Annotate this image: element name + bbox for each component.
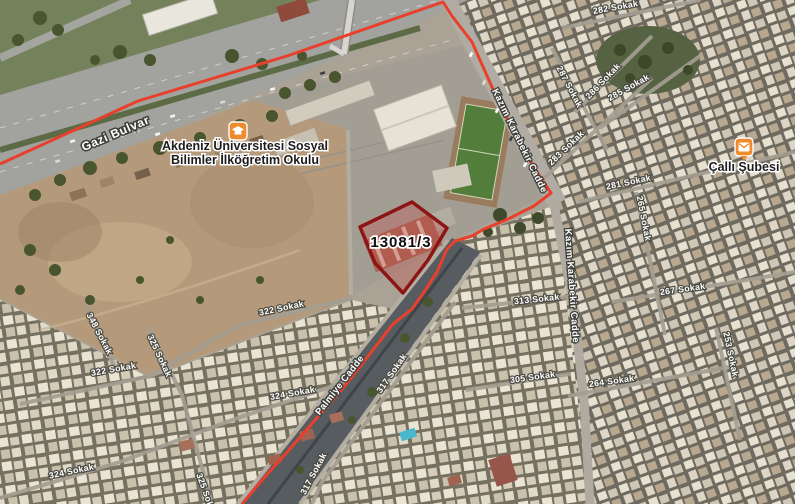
- parcel-label: 13081/3: [370, 234, 431, 251]
- school-icon[interactable]: [229, 122, 247, 140]
- poi-school-label-line1: Akdeniz Üniversitesi Sosyal: [162, 138, 328, 153]
- satellite-map[interactable]: 13081/3 Akdeniz Üniversitesi Sosyal Bili…: [0, 0, 795, 504]
- poi-post-office-label: Çallı Şubesi: [709, 160, 780, 174]
- poi-school-label-line2: Bilimler İlköğretim Okulu: [171, 152, 319, 167]
- dirt-patch: [190, 156, 314, 248]
